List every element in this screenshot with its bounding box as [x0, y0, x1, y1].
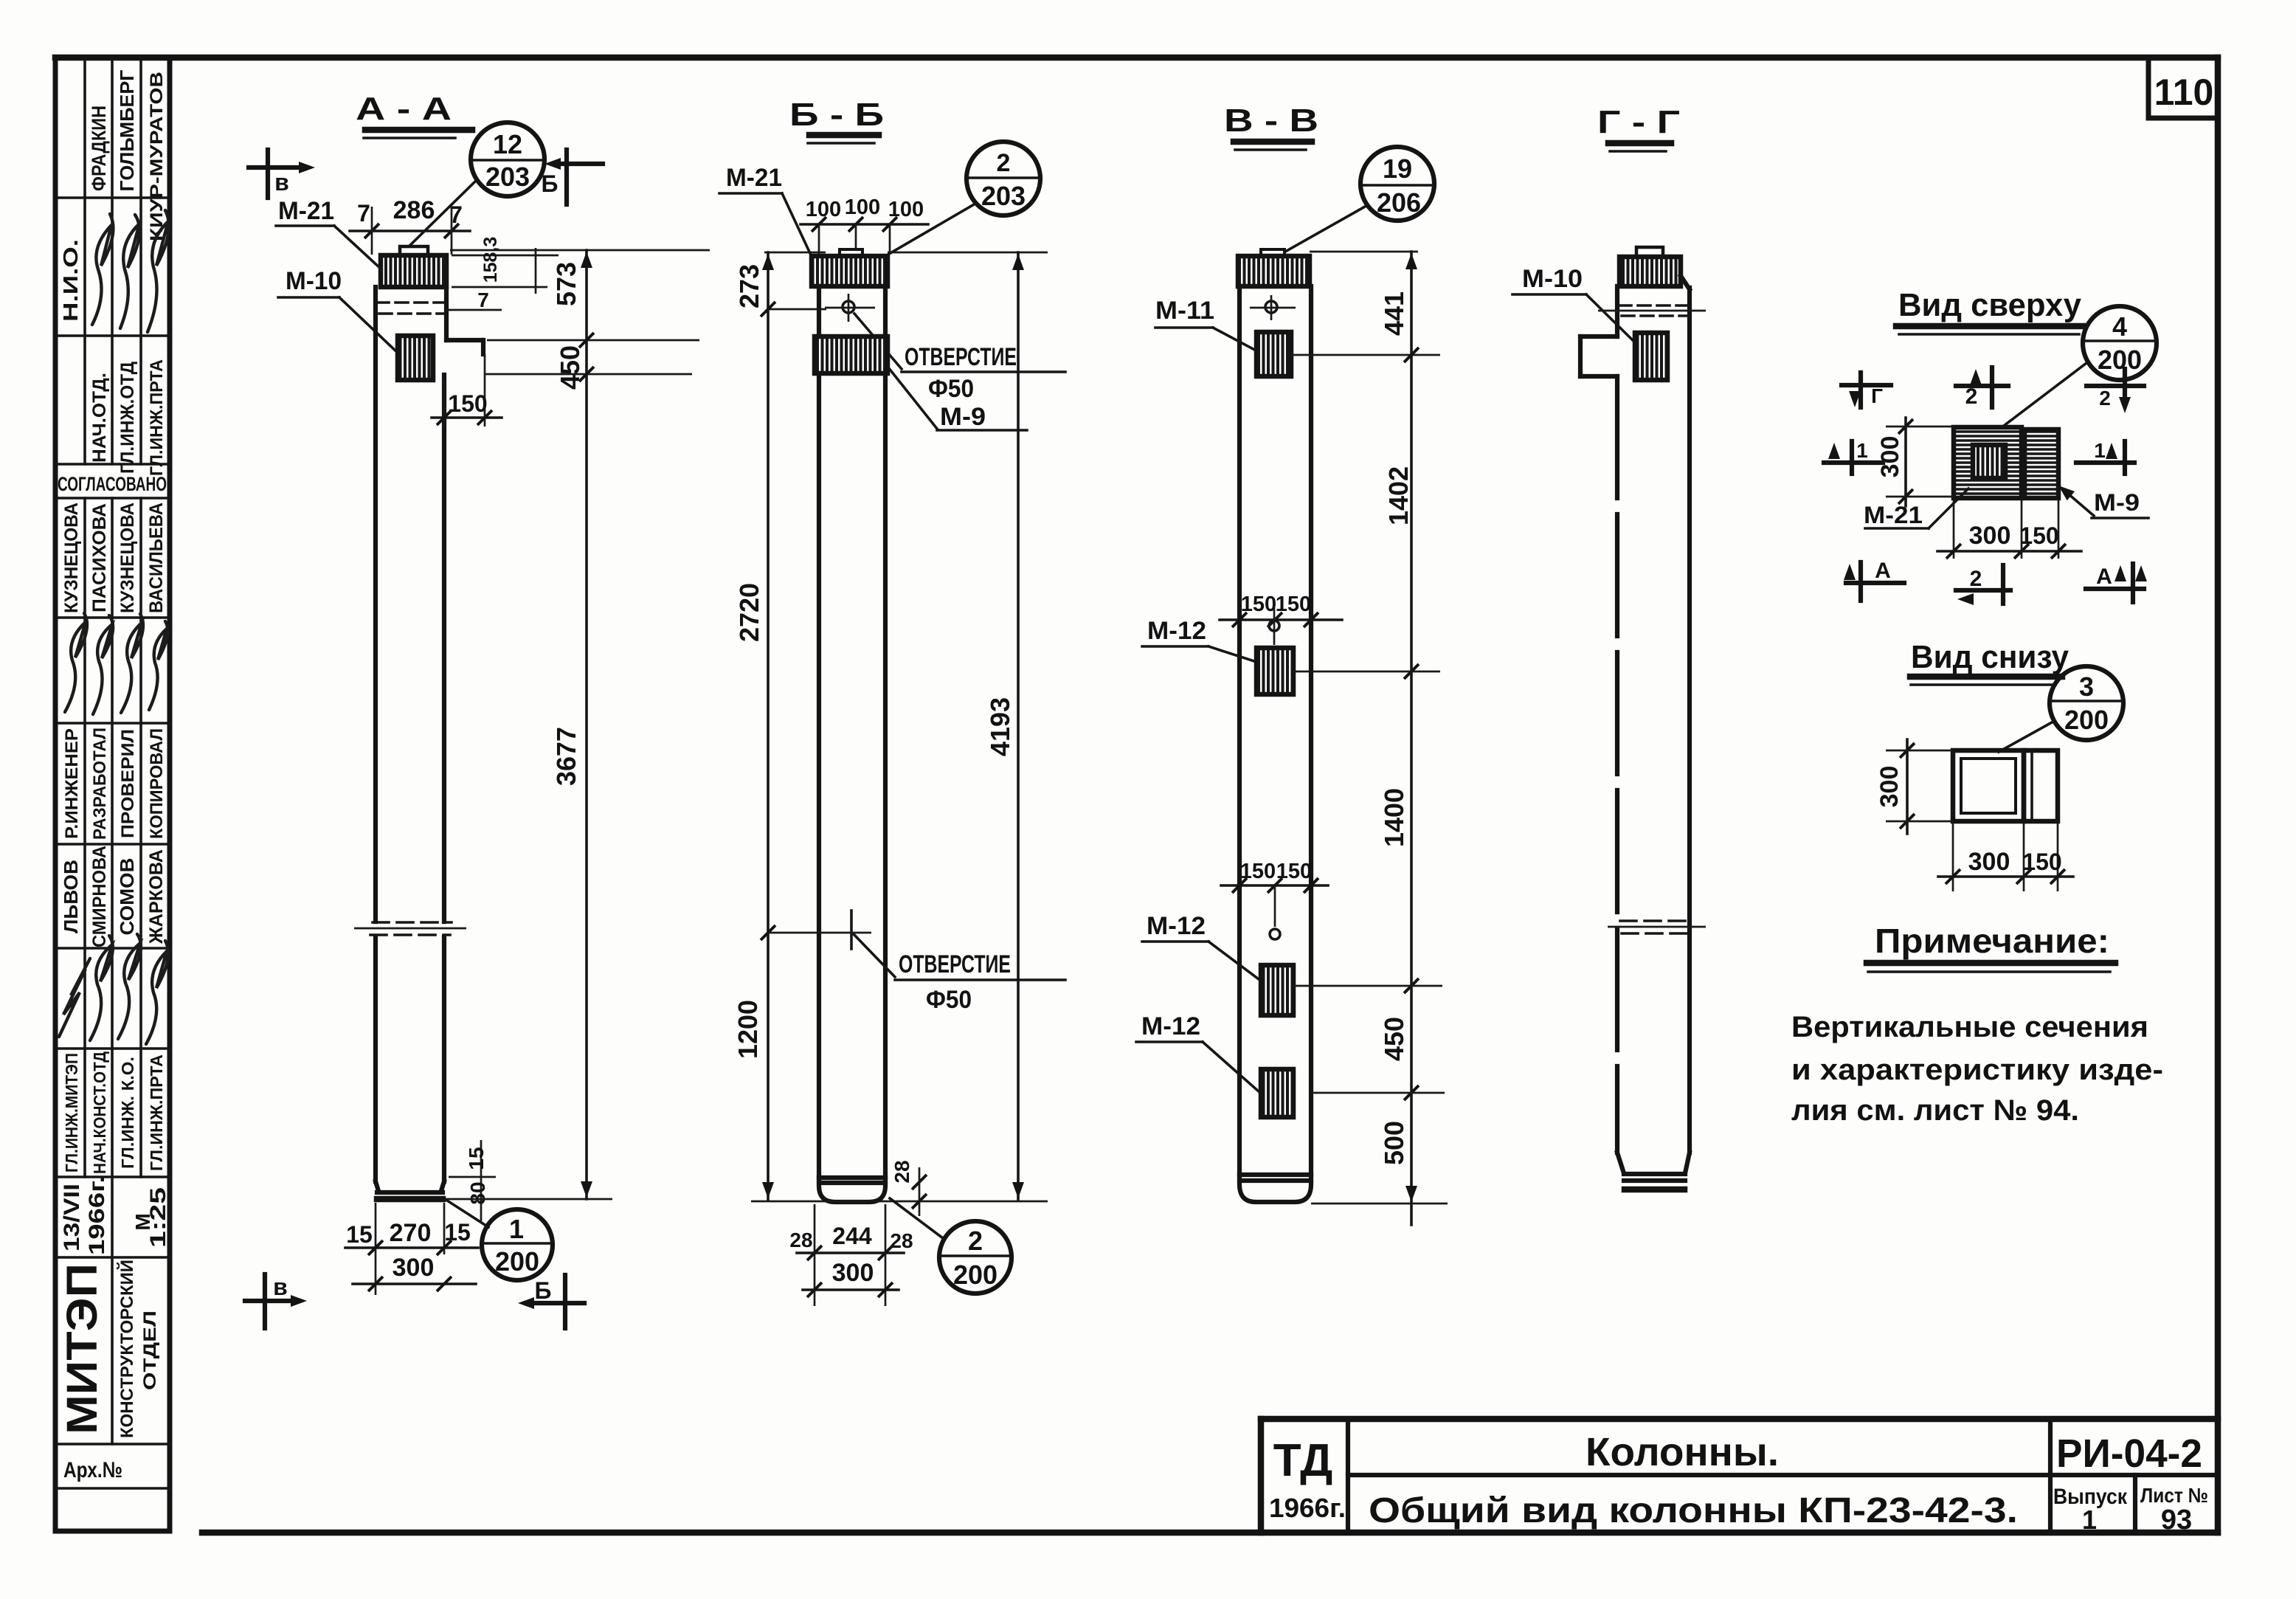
svg-text:КУЗНЕЦОВА: КУЗНЕЦОВА	[117, 503, 138, 613]
svg-text:1966г.: 1966г.	[85, 1175, 109, 1255]
svg-text:М-12: М-12	[1147, 912, 1206, 940]
svg-text:КОПИРОВАЛ: КОПИРОВАЛ	[147, 728, 167, 839]
svg-text:ОТВЕРСТИЕ: ОТВЕРСТИЕ	[905, 343, 1017, 371]
svg-text:МИТЭП: МИТЭП	[58, 1263, 106, 1434]
svg-text:300: 300	[832, 1259, 874, 1287]
svg-text:2: 2	[2099, 387, 2111, 410]
svg-text:300: 300	[393, 1254, 435, 1282]
svg-text:Колонны.: Колонны.	[1586, 1430, 1779, 1474]
svg-text:15: 15	[346, 1221, 373, 1248]
svg-text:270: 270	[390, 1219, 432, 1247]
svg-text:500: 500	[1379, 1121, 1409, 1165]
svg-text:2: 2	[1965, 384, 1978, 409]
svg-text:Б - Б: Б - Б	[789, 97, 884, 133]
svg-text:НАЧ.КОНСТ.ОТД: НАЧ.КОНСТ.ОТД	[90, 1051, 109, 1174]
svg-text:1: 1	[1856, 439, 1868, 462]
svg-text:15: 15	[444, 1219, 471, 1246]
svg-text:19: 19	[1383, 153, 1412, 184]
svg-text:М-9: М-9	[2094, 489, 2140, 516]
svg-text:М-12: М-12	[1147, 617, 1206, 645]
svg-text:А: А	[1875, 559, 1891, 583]
svg-text:1: 1	[2082, 1505, 2097, 1535]
svg-text:Общий вид колонны КП-23-42-3.: Общий вид колонны КП-23-42-3.	[1369, 1491, 2018, 1530]
svg-text:573: 573	[551, 262, 581, 306]
svg-text:Г: Г	[1871, 384, 1883, 407]
svg-text:4193: 4193	[985, 697, 1015, 756]
svg-text:Н.И.О.: Н.И.О.	[59, 239, 82, 322]
svg-text:ГЛ.ИНЖ.МИТЭП: ГЛ.ИНЖ.МИТЭП	[62, 1053, 81, 1173]
svg-text:150: 150	[2019, 522, 2058, 549]
svg-text:М-9: М-9	[940, 403, 986, 431]
svg-text:1402: 1402	[1383, 466, 1414, 525]
svg-text:КОНСТРУКТОРСКИЙ: КОНСТРУКТОРСКИЙ	[117, 1260, 137, 1438]
svg-text:158,3: 158,3	[480, 237, 501, 283]
svg-text:Ф50: Ф50	[928, 375, 974, 403]
svg-text:7: 7	[477, 289, 489, 311]
svg-text:Р.ИНЖЕНЕР: Р.ИНЖЕНЕР	[62, 728, 82, 839]
svg-text:1:25: 1:25	[146, 1187, 170, 1248]
svg-text:М-10: М-10	[1522, 265, 1583, 293]
svg-text:КИУР-МУРАТОВ: КИУР-МУРАТОВ	[147, 72, 167, 241]
svg-text:Примечание:: Примечание:	[1875, 922, 2109, 960]
svg-text:М-10: М-10	[286, 267, 342, 295]
svg-text:Лист №: Лист №	[2140, 1484, 2208, 1507]
svg-text:2720: 2720	[734, 583, 764, 642]
svg-text:300: 300	[1876, 436, 1904, 478]
svg-text:2: 2	[968, 1226, 983, 1256]
svg-text:244: 244	[832, 1223, 872, 1249]
svg-text:3: 3	[2079, 671, 2094, 702]
svg-text:лия см. лист № 94.: лия см. лист № 94.	[1791, 1094, 2079, 1127]
svg-text:450: 450	[555, 345, 585, 390]
svg-text:ОТДЕЛ: ОТДЕЛ	[140, 1310, 160, 1390]
svg-text:А - А: А - А	[356, 91, 452, 127]
svg-text:В - В: В - В	[1224, 103, 1318, 139]
svg-text:ОТВЕРСТИЕ: ОТВЕРСТИЕ	[899, 950, 1011, 978]
svg-text:М-12: М-12	[1141, 1012, 1200, 1040]
svg-text:273: 273	[734, 264, 764, 308]
svg-text:ПАСИХОВА: ПАСИХОВА	[89, 503, 110, 612]
svg-text:ГЛ.ИНЖ.ПРТА: ГЛ.ИНЖ.ПРТА	[147, 359, 167, 476]
svg-text:203: 203	[485, 162, 530, 192]
svg-text:РИ-04-2: РИ-04-2	[2056, 1431, 2202, 1476]
svg-text:200: 200	[2064, 705, 2109, 735]
svg-text:СОМОВ: СОМОВ	[116, 858, 138, 936]
svg-text:100: 100	[888, 198, 924, 221]
svg-text:1400: 1400	[1379, 788, 1409, 847]
svg-text:СМИРНОВА: СМИРНОВА	[89, 846, 110, 947]
svg-text:А: А	[2096, 564, 2112, 589]
svg-text:13/VII: 13/VII	[60, 1184, 84, 1251]
svg-text:28: 28	[890, 1229, 913, 1252]
svg-text:4: 4	[2112, 311, 2127, 342]
svg-text:Арх.№: Арх.№	[63, 1458, 122, 1482]
svg-text:1200: 1200	[733, 1000, 763, 1059]
svg-text:ЛЬВОВ: ЛЬВОВ	[60, 860, 82, 933]
svg-text:200: 200	[495, 1246, 539, 1277]
svg-text:110: 110	[2154, 72, 2214, 113]
svg-text:2: 2	[1970, 567, 1982, 591]
svg-text:ТД: ТД	[1273, 1435, 1333, 1486]
svg-text:ВАСИЛЬЕВА: ВАСИЛЬЕВА	[146, 503, 167, 613]
svg-text:450: 450	[1379, 1017, 1409, 1061]
svg-text:М-21: М-21	[1864, 502, 1923, 528]
svg-text:28: 28	[789, 1229, 812, 1251]
svg-text:ГЛ.ИНЖ.ПРТА: ГЛ.ИНЖ.ПРТА	[147, 1054, 166, 1171]
svg-text:Вид сверху: Вид сверху	[1898, 287, 2082, 323]
svg-text:в: в	[274, 169, 289, 196]
svg-text:Ф50: Ф50	[926, 986, 972, 1014]
svg-text:М-21: М-21	[278, 197, 334, 225]
svg-text:1: 1	[2094, 439, 2106, 462]
svg-text:7: 7	[357, 200, 370, 227]
svg-text:12: 12	[493, 129, 522, 159]
svg-text:200: 200	[2098, 345, 2142, 375]
svg-text:15: 15	[465, 1147, 488, 1170]
svg-text:РАЗРАБОТАЛ: РАЗРАБОТАЛ	[90, 728, 110, 840]
svg-text:КУЗНЕЦОВА: КУЗНЕЦОВА	[61, 503, 82, 613]
svg-text:и характеристику изде-: и характеристику изде-	[1791, 1054, 2163, 1086]
svg-text:150: 150	[448, 390, 487, 417]
svg-text:М-11: М-11	[1155, 297, 1214, 325]
svg-text:441: 441	[1379, 291, 1409, 336]
svg-text:300: 300	[1968, 848, 2010, 876]
svg-text:1966г.: 1966г.	[1269, 1493, 1346, 1523]
svg-text:300: 300	[1875, 766, 1903, 808]
svg-text:200: 200	[953, 1260, 997, 1290]
svg-text:Г - Г: Г - Г	[1597, 104, 1680, 140]
svg-text:в: в	[273, 1274, 288, 1300]
svg-text:80: 80	[466, 1181, 489, 1204]
svg-text:Вертикальные сечения: Вертикальные сечения	[1791, 1011, 2148, 1043]
svg-text:ГЛ.ИНЖ. К.О.: ГЛ.ИНЖ. К.О.	[118, 1057, 137, 1169]
svg-text:ФРАДКИН: ФРАДКИН	[88, 106, 110, 191]
svg-text:НАЧ.ОТД.: НАЧ.ОТД.	[89, 373, 110, 463]
svg-text:Вид снизу: Вид снизу	[1911, 639, 2069, 675]
svg-text:3677: 3677	[551, 727, 581, 786]
svg-text:100: 100	[845, 196, 880, 219]
svg-text:ГЛ.ИНЖ.ОТД: ГЛ.ИНЖ.ОТД	[117, 362, 138, 474]
svg-text:СОГЛАСОВАНО: СОГЛАСОВАНО	[58, 473, 167, 495]
svg-text:2: 2	[997, 149, 1011, 177]
svg-text:93: 93	[2161, 1505, 2192, 1536]
svg-text:1: 1	[509, 1214, 524, 1244]
svg-text:ЖАРКОВА: ЖАРКОВА	[146, 849, 167, 944]
svg-text:203: 203	[981, 181, 1026, 211]
svg-text:Б: Б	[535, 1277, 552, 1304]
svg-text:ПРОВЕРИЛ: ПРОВЕРИЛ	[118, 729, 138, 838]
svg-text:206: 206	[1377, 187, 1421, 218]
svg-text:286: 286	[393, 196, 435, 224]
svg-text:ГОЛЬМБЕРГ: ГОЛЬМБЕРГ	[116, 69, 138, 191]
svg-text:М-21: М-21	[726, 164, 782, 192]
svg-text:300: 300	[1969, 522, 2011, 550]
svg-text:28: 28	[891, 1160, 913, 1183]
